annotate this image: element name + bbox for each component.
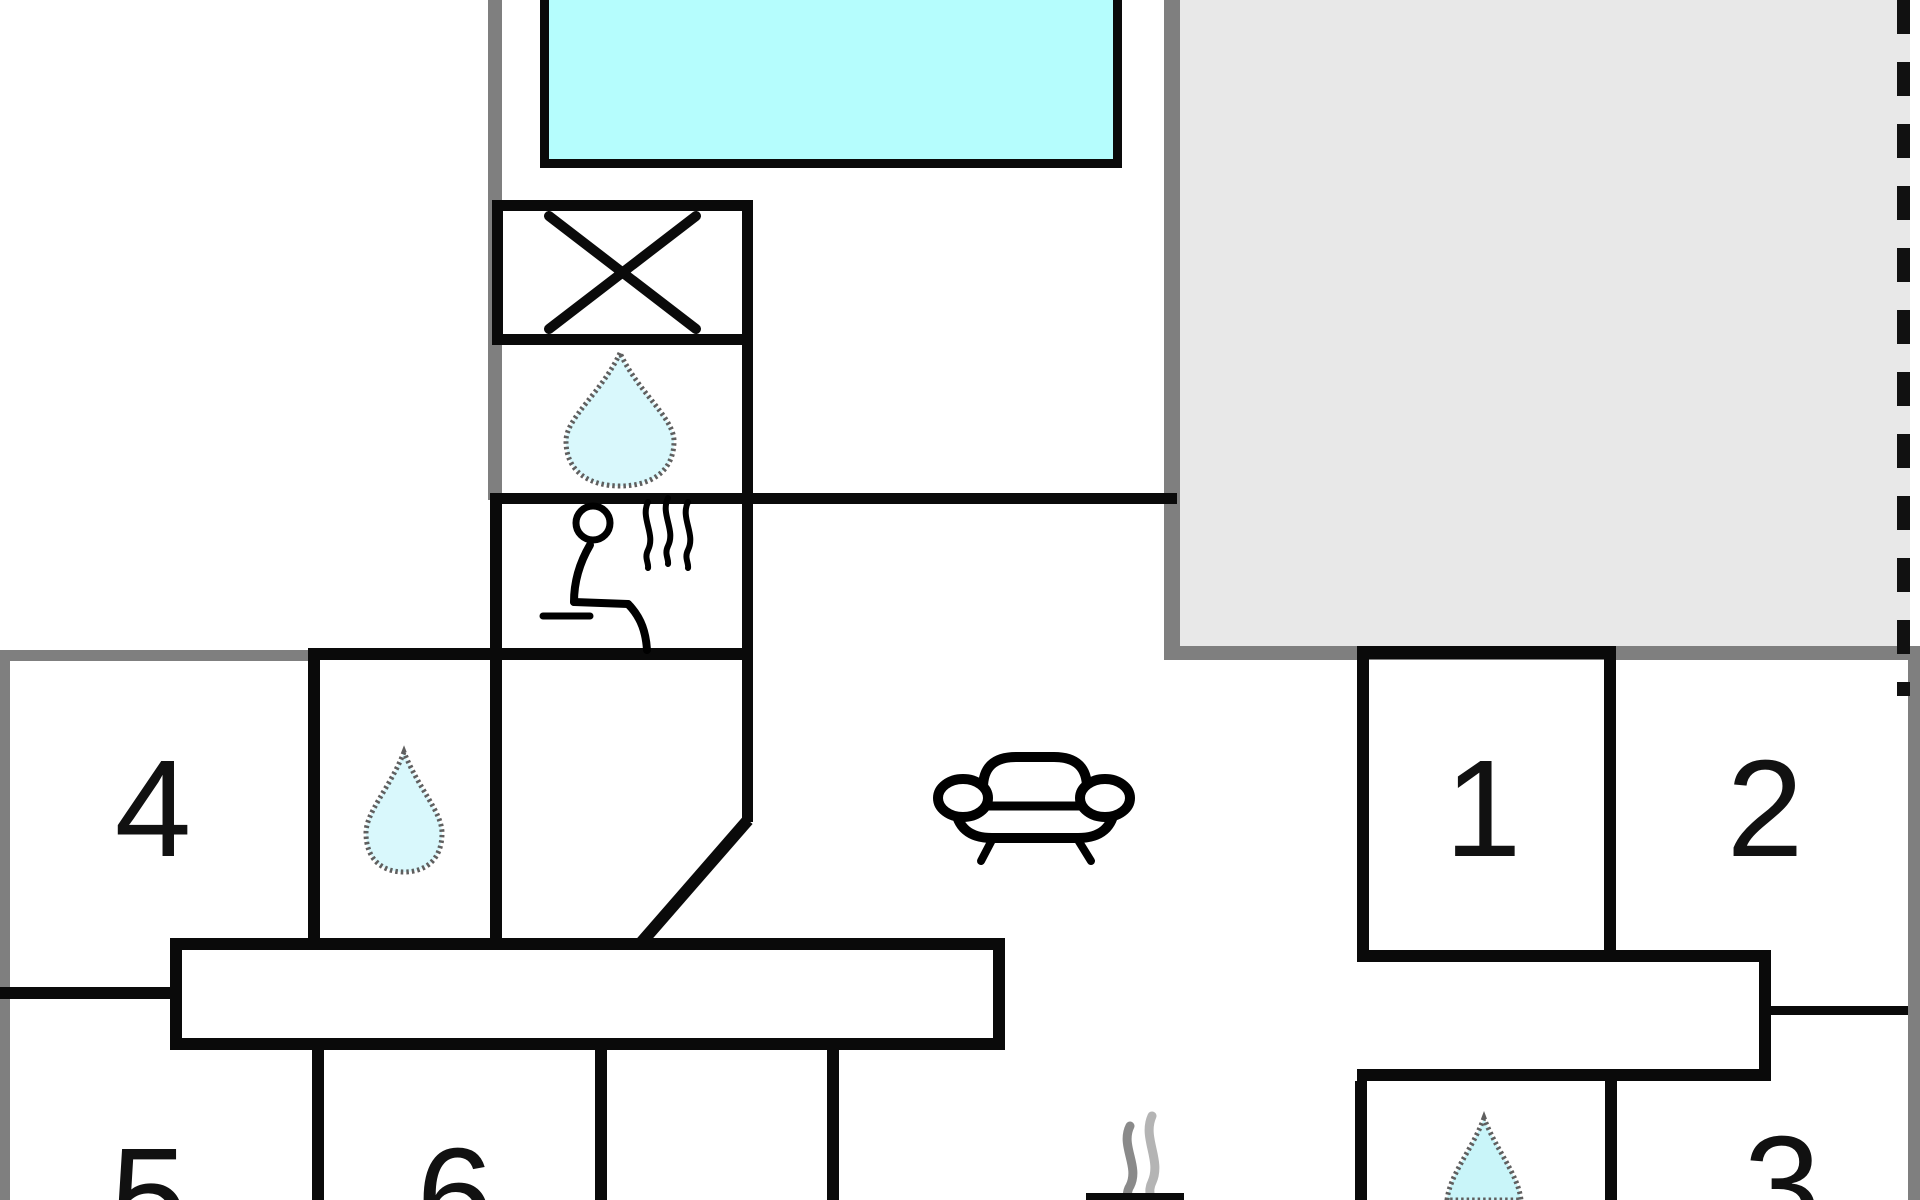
wall [1357,950,1771,962]
water-drop-icon-shower-lower [1447,1118,1521,1200]
room-label-6: 6 [385,1128,525,1200]
wall [312,1050,324,1200]
room-label-3: 3 [1712,1116,1852,1200]
wall [0,987,182,999]
diagonal-wall [640,820,748,944]
wall [1164,0,1180,660]
wall [1759,950,1771,1081]
wall [492,200,503,345]
crossed-box-window-icon [549,216,696,329]
pool [540,0,1122,168]
wall [0,650,10,1200]
wall [1908,656,1920,1200]
room-label-1: 1 [1413,740,1553,878]
coffee-steam-icon [1127,1116,1155,1199]
dashed-property-line [1897,0,1910,696]
room-label-2: 2 [1695,740,1835,878]
coffee-cup-icon [1086,1193,1184,1200]
wall [0,650,320,661]
wall [742,200,753,822]
wall [1355,1081,1367,1200]
room-label-5: 5 [79,1128,219,1200]
wall [1357,646,1616,659]
wall [170,1038,1005,1050]
wall [1357,646,1369,962]
sofa-icon [938,757,1130,861]
terrace-area [1177,0,1910,651]
wall [595,1050,607,1200]
wall [308,650,320,941]
wall [490,497,502,941]
wall [1605,1081,1617,1200]
water-drop-icon-shower-upper [566,353,674,486]
wall [492,200,753,211]
wall [1357,1069,1771,1081]
wall [1604,646,1616,962]
water-drop-icon-shower-middle [366,752,442,872]
wall [490,493,1177,504]
wall [308,648,753,660]
room-label-4: 4 [83,740,223,878]
wall [170,938,1005,950]
wall [993,938,1005,1050]
wall [170,938,182,1050]
sauna-person-icon [543,506,647,650]
wall [492,334,753,345]
wall [1771,1006,1908,1015]
sauna-steam-icon [646,498,691,568]
floor-plan-canvas: 4 1 2 5 6 3 [0,0,1920,1200]
wall [827,1050,839,1200]
